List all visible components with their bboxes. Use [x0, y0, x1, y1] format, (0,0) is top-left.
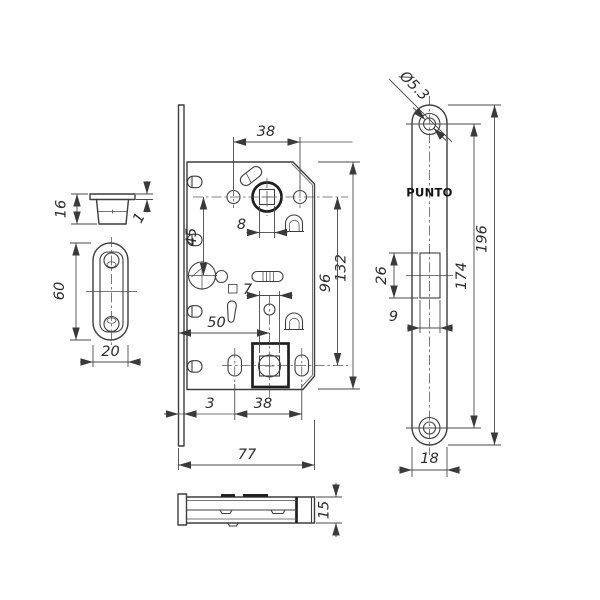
- dim-18: 18: [398, 447, 461, 477]
- dim-96-label: 96: [318, 274, 334, 292]
- dim-50-label: 50: [207, 315, 225, 331]
- view-cap-top: 16 1: [54, 181, 154, 226]
- dim-9-label: 9: [389, 309, 398, 325]
- dim-77: 77: [179, 420, 315, 470]
- view-faceplate-front: Ø5.3 PUNTO 26 9 174: [374, 68, 501, 477]
- dim-20-label: 20: [101, 344, 119, 360]
- dim-15-label: 15: [317, 501, 333, 519]
- dim-196-label: 196: [475, 225, 491, 253]
- dim-45-label: 45: [184, 228, 200, 246]
- drawing-canvas: 38 45 8 7 50: [0, 0, 600, 600]
- staple-clip-lower: [284, 313, 304, 330]
- small-hole: [216, 271, 228, 283]
- cylinder-hole: [188, 261, 218, 290]
- dim-60-label: 60: [52, 282, 68, 300]
- view-lock-side: 15: [178, 483, 342, 537]
- dim-38-top-label: 38: [257, 124, 275, 140]
- dim-1-label: 1: [130, 210, 148, 226]
- dim-9: 9: [389, 300, 453, 333]
- teardrop-slot: [228, 301, 237, 322]
- view-strike-plate: 60 20: [52, 237, 141, 367]
- brand-logo-text: PUNTO: [406, 186, 453, 200]
- dim-174-label: 174: [454, 262, 470, 290]
- square-symbol: [229, 285, 238, 294]
- side-faceplate-edge: [178, 494, 187, 525]
- dim-38-top: 38: [234, 124, 353, 189]
- dim-20: 20: [80, 344, 141, 367]
- dim-3-label: 3: [205, 396, 214, 412]
- dim-15: 15: [316, 483, 342, 537]
- latch-cutout: [406, 253, 453, 298]
- view-lock-body-main: 38 45 8 7 50: [164, 105, 360, 470]
- dim-38-bottom-label: 38: [254, 396, 272, 412]
- dim-hole-dia: Ø5.3: [389, 68, 452, 142]
- screw-hole-top: [406, 114, 481, 135]
- faceplate-strip: [179, 105, 185, 446]
- dim-hole-dia-label: Ø5.3: [395, 68, 431, 104]
- dim-77-label: 77: [238, 447, 257, 463]
- dim-8-label: 8: [237, 217, 246, 233]
- dim-18-label: 18: [420, 451, 438, 467]
- staple-clip-upper: [284, 215, 304, 232]
- dim-174: 174: [454, 124, 474, 428]
- spring-slot: [252, 272, 283, 282]
- dim-1: 1: [130, 181, 153, 226]
- lock-technical-drawing: 38 45 8 7 50: [0, 0, 600, 600]
- dim-7-label: 7: [243, 282, 253, 298]
- cap-flange: [90, 194, 135, 200]
- side-body: [187, 495, 315, 526]
- dim-60: 60: [52, 243, 91, 340]
- screw-hole-bottom: [406, 418, 481, 439]
- dim-16-label: 16: [54, 200, 70, 218]
- dim-50: 50: [179, 315, 270, 333]
- dim-132-label: 132: [334, 254, 350, 282]
- dim-26-label: 26: [374, 266, 390, 284]
